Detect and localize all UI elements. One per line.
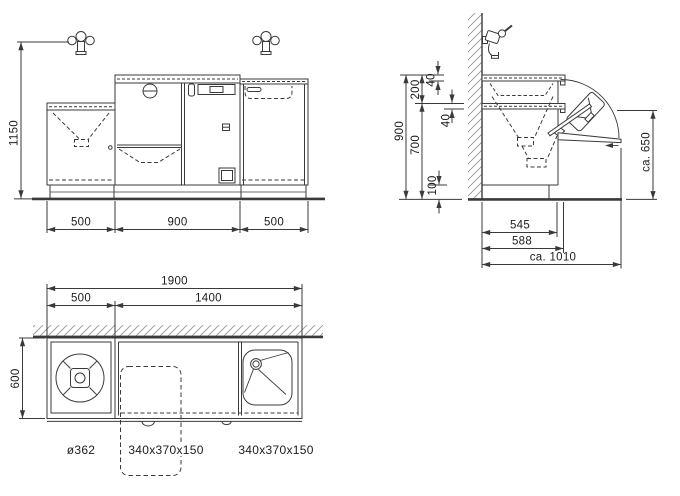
side-dim-lower-height: 700 xyxy=(410,135,422,155)
front-right-cabinet xyxy=(240,79,308,185)
side-dim-upper-height: 200 xyxy=(410,79,422,99)
side-dim-shelf-thickness: 40 xyxy=(441,114,453,127)
plan-sink-drain xyxy=(251,359,262,370)
side-tipout-open-basin xyxy=(566,91,606,132)
plan-view: 1900 500 1400 600 ø362 340x370x150 340x3… xyxy=(10,276,323,476)
side-swing-arrowhead xyxy=(605,143,613,148)
side-dims-depth: 545 588 ca. 1010 xyxy=(482,148,621,269)
side-dim-depth-open: ca. 1010 xyxy=(530,252,577,264)
side-section-view: 900 700 200 40 40 100 545 588 ca. 1010 c… xyxy=(394,13,657,269)
front-dim-height-label: 1150 xyxy=(9,120,21,146)
plan-dim-width-right: 1400 xyxy=(195,293,222,305)
plan-sink xyxy=(243,350,292,405)
plan-label-round-basin: ø362 xyxy=(67,443,96,457)
plan-dim-width-left: 500 xyxy=(71,293,91,305)
plan-dim-depth: 600 xyxy=(10,368,22,388)
side-dims-vertical: 900 700 200 40 40 100 xyxy=(394,61,464,214)
technical-drawing-canvas: 1150 500 900 500 xyxy=(0,0,680,496)
front-dim-width-left: 500 xyxy=(71,217,91,229)
side-dim-depth-counter: 588 xyxy=(512,236,532,248)
front-faucet-right xyxy=(253,32,280,55)
front-elevation-view: 1150 500 900 500 xyxy=(9,32,326,234)
side-dim-depth-body: 545 xyxy=(510,220,530,232)
plan-wall-hatch xyxy=(33,325,323,337)
side-dim-plinth-height: 100 xyxy=(427,175,439,195)
side-wall-hatch xyxy=(468,13,482,200)
front-left-cabinet xyxy=(47,103,115,185)
plan-part-labels: ø362 340x370x150 340x370x150 xyxy=(67,443,314,457)
side-upper-basin-dashed xyxy=(490,84,553,96)
front-plinth xyxy=(47,185,308,199)
plan-label-tipout-basin: 340x370x150 xyxy=(128,443,203,457)
side-dim-open-height-label: ca. 650 xyxy=(641,132,653,172)
plan-label-sink: 340x370x150 xyxy=(238,443,313,457)
front-dim-width-middle: 900 xyxy=(167,217,187,229)
side-dim-open-height: ca. 650 xyxy=(617,111,657,200)
side-dim-counter-thickness: 40 xyxy=(426,73,438,86)
drawing-svg: 1150 500 900 500 xyxy=(0,0,680,496)
side-dim-total-height: 900 xyxy=(394,121,406,141)
side-shelf xyxy=(482,104,565,113)
front-middle-unit xyxy=(115,75,240,185)
side-open-shelf-flap xyxy=(558,133,621,143)
plan-handle-notch-left xyxy=(142,421,154,426)
front-faucet-left xyxy=(68,32,95,55)
plan-dim-total-width: 1900 xyxy=(161,276,188,288)
front-dim-widths: 500 900 500 xyxy=(47,201,308,233)
side-wall-faucet xyxy=(483,26,513,59)
front-dim-width-right: 500 xyxy=(264,217,284,229)
